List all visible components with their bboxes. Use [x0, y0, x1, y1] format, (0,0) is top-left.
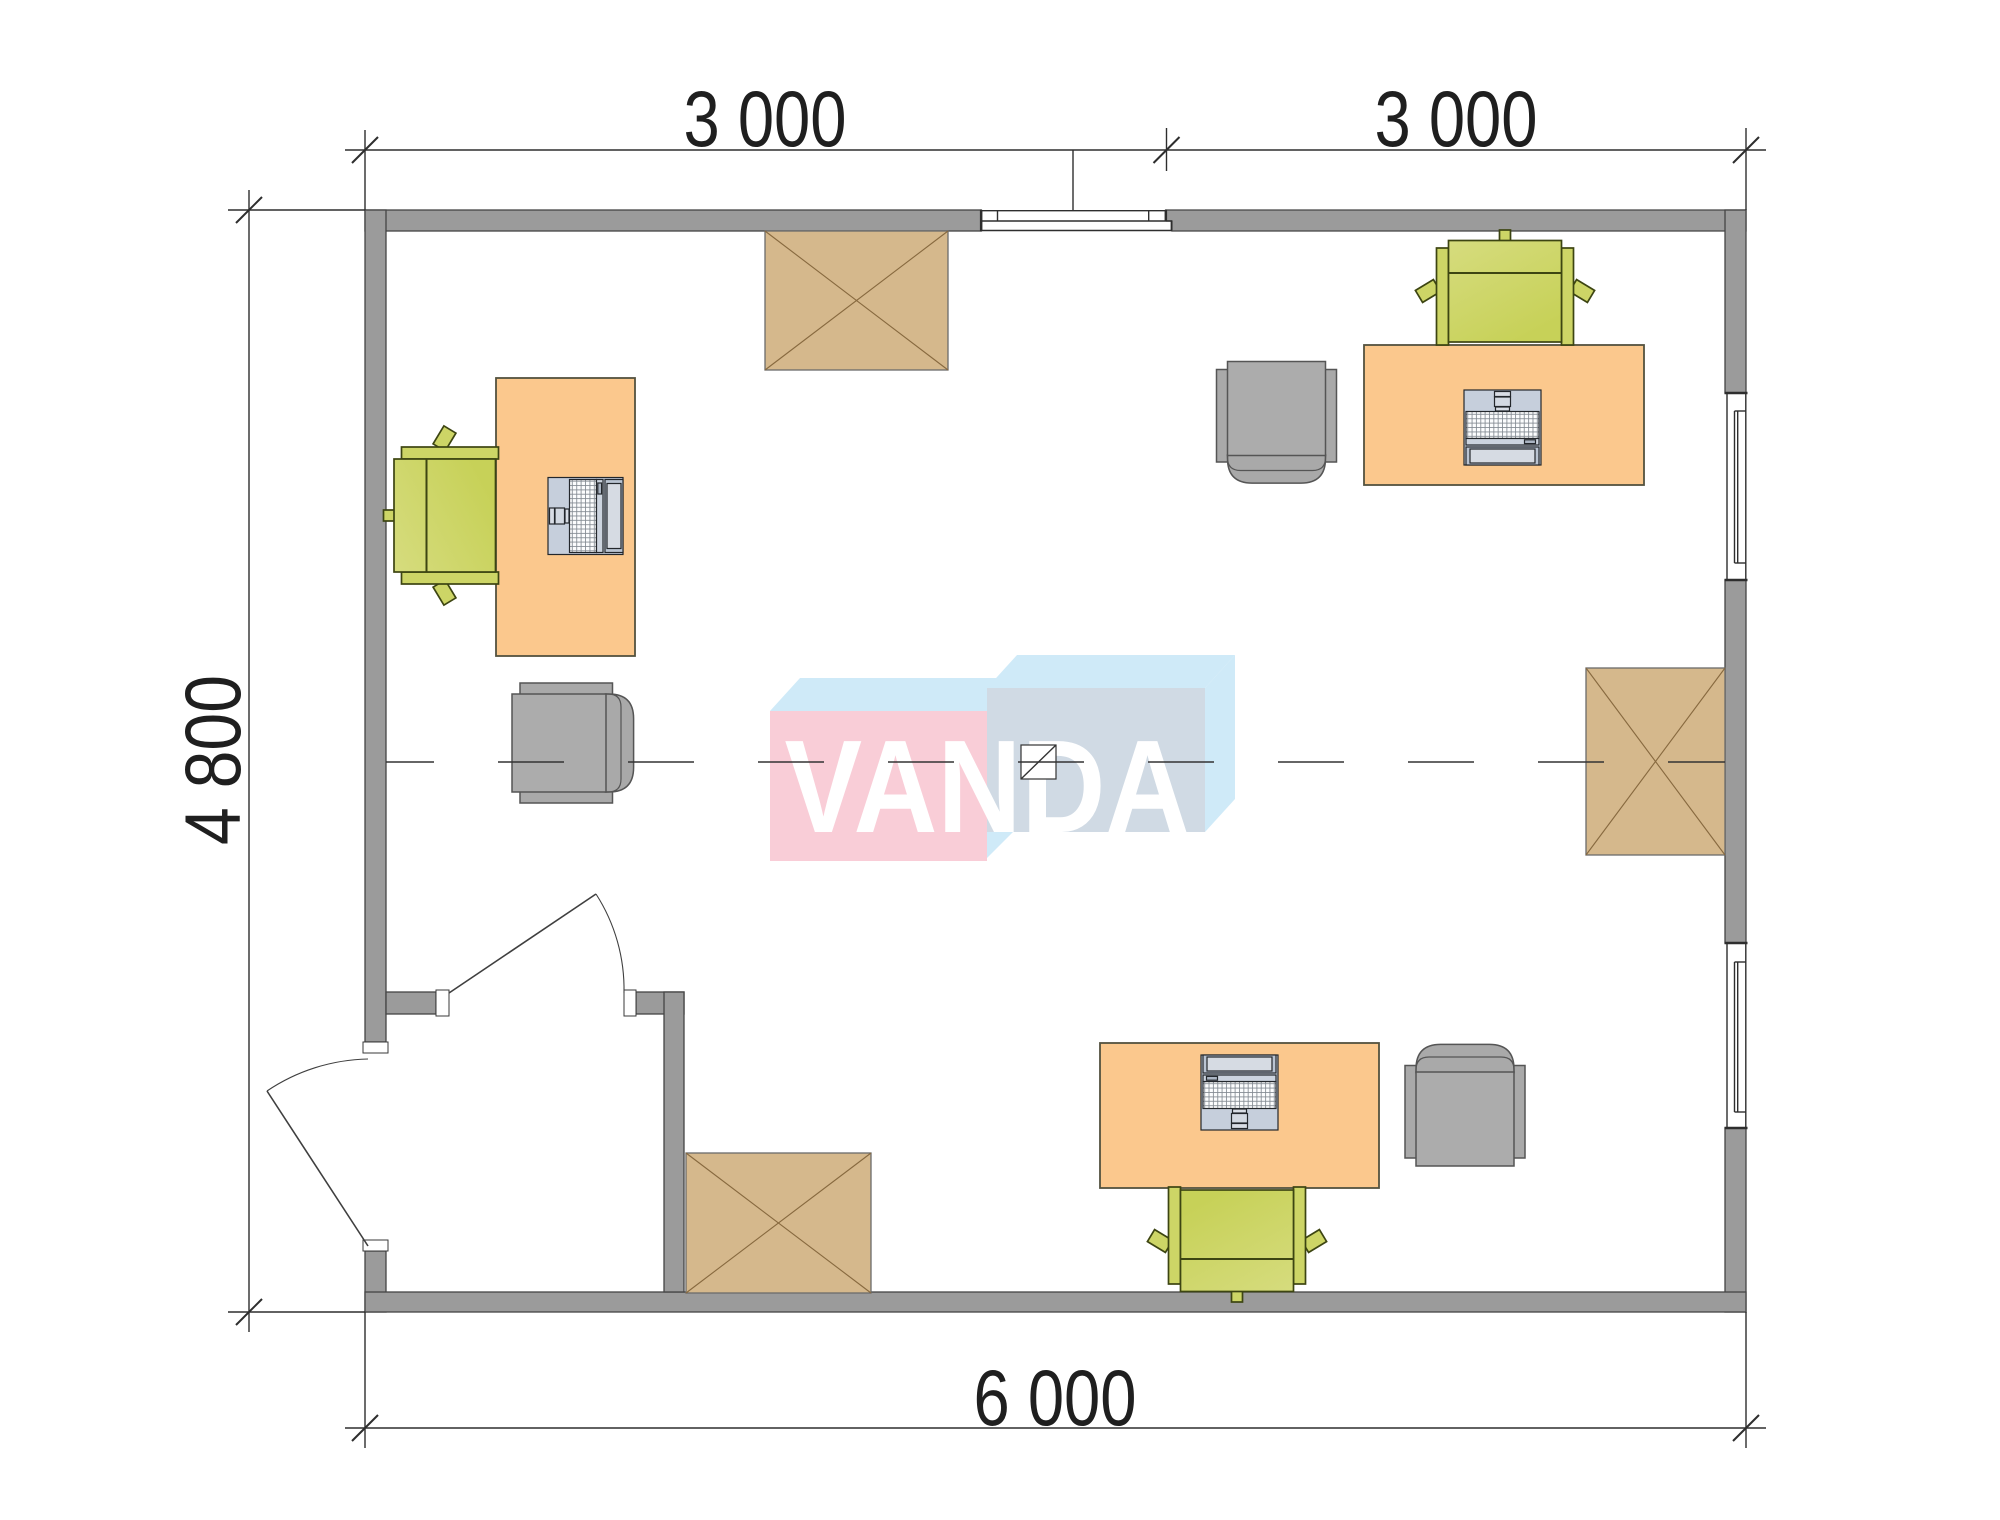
svg-text:3 000: 3 000	[1375, 74, 1538, 163]
svg-text:3 000: 3 000	[684, 74, 847, 163]
svg-text:4 800: 4 800	[168, 675, 257, 845]
svg-text:VANDA: VANDA	[785, 713, 1190, 860]
svg-text:6 000: 6 000	[974, 1353, 1137, 1442]
